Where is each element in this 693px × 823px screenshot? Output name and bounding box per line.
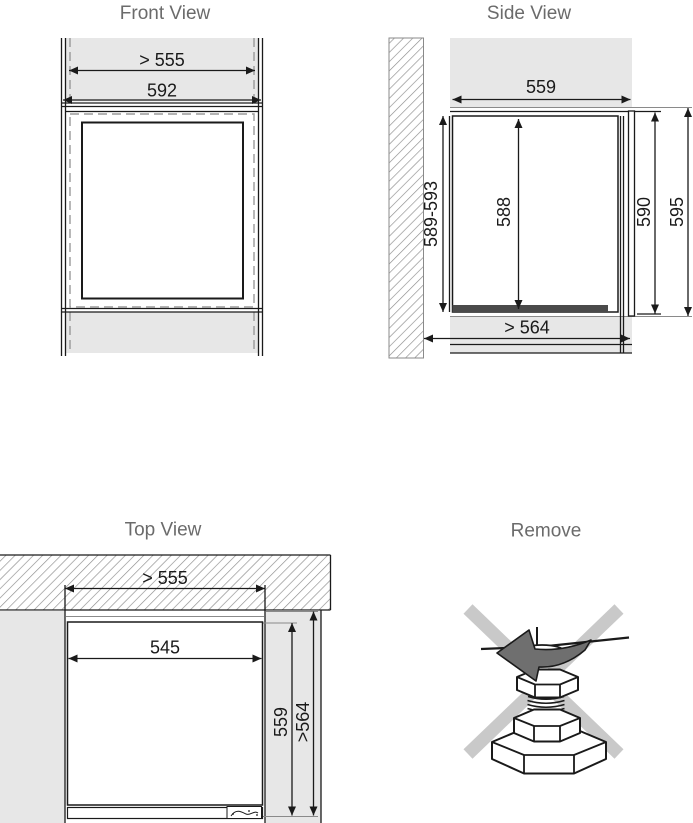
side-dim-label-niche-height: 589-593	[421, 181, 441, 247]
side-wall-hatch	[389, 38, 424, 358]
side-dim-label-bottom-depth: > 564	[504, 318, 550, 338]
top-dim-label-niche-width: > 555	[142, 568, 188, 588]
side-appliance-body	[453, 116, 619, 312]
top-dim-label-body-depth: 559	[271, 707, 291, 737]
top-hinge-dot-2	[248, 810, 250, 812]
side-view-title: Side View	[487, 3, 571, 24]
side-base-dark-bar	[453, 305, 609, 312]
remove-view: Remove	[468, 521, 629, 774]
front-dim-label-niche-width: > 555	[139, 50, 185, 70]
top-dim-label-niche-depth: >564	[293, 702, 313, 743]
top-dim-label-body-width: 545	[150, 638, 180, 658]
side-top-panel	[450, 38, 632, 108]
front-view: Front View > 555 592	[62, 3, 263, 356]
side-dim-label-body-height: 588	[494, 197, 514, 227]
remove-title: Remove	[511, 521, 582, 542]
top-hinge-dot-3	[256, 814, 258, 816]
top-hinge-dot-1	[232, 813, 234, 815]
top-view-title: Top View	[125, 520, 202, 541]
front-dim-label-overall-width: 592	[147, 81, 177, 101]
front-door-panel	[82, 123, 243, 299]
front-bottom-panel	[66, 312, 258, 353]
side-dim-label-overall-height: 595	[667, 197, 687, 227]
installation-diagram: Front View > 555 592 Side View 559 589-5…	[0, 0, 693, 823]
front-view-title: Front View	[120, 3, 211, 24]
top-left-cabinet-panel	[0, 611, 64, 823]
top-view: Top View > 555 545 559 >564	[0, 520, 331, 823]
side-dim-label-door-height: 590	[634, 197, 654, 227]
side-dim-label-top-depth: 559	[526, 77, 556, 97]
side-view: Side View 559 589-593 588 590 595 > 564	[389, 3, 692, 358]
